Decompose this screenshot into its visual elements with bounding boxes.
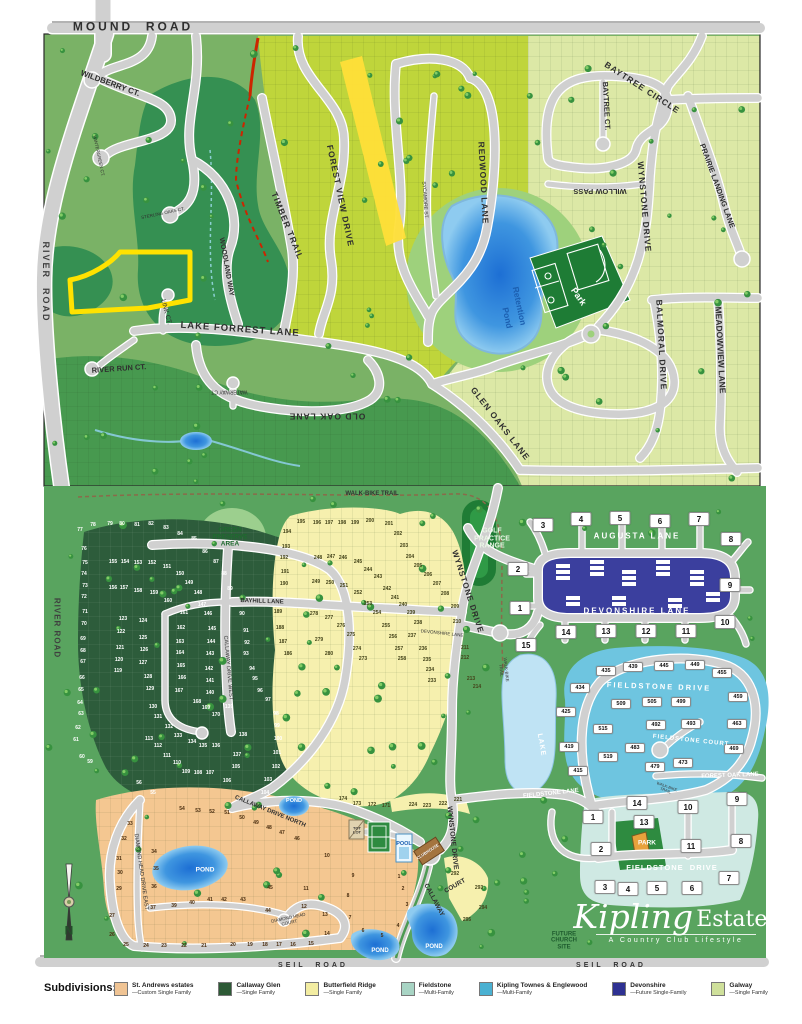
legend-item: Galway—Single Family <box>711 982 768 996</box>
legend-sublabel: —Multi-Family <box>497 990 588 997</box>
legend-label: Callaway Glen—Single Family <box>236 982 280 996</box>
lake <box>502 654 556 793</box>
legend-swatch <box>612 982 626 996</box>
map-graphic <box>0 0 802 1024</box>
legend-item: Callaway Glen—Single Family <box>218 982 280 996</box>
legend-label: Kipling Townes & Englewood—Multi-Family <box>497 982 588 996</box>
legend-sublabel: —Custom Single Family <box>132 990 194 997</box>
logo-kipling: Kipling <box>573 902 693 932</box>
logo-estates: Estates <box>696 908 778 932</box>
small-pond <box>279 796 309 816</box>
legend-label: Fieldstone—Multi-Family <box>419 982 454 996</box>
tennis-courts <box>368 822 390 852</box>
legend-swatch <box>114 982 128 996</box>
legend-sublabel: —Multi-Family <box>419 990 454 997</box>
legend-sublabel: —Future Single-Family <box>630 990 686 997</box>
legend-label: Butterfield Ridge—Single Family <box>323 982 375 996</box>
legend-sublabel: —Single Family <box>323 990 375 997</box>
legend-item: Fieldstone—Multi-Family <box>401 982 454 996</box>
legend-swatch <box>711 982 725 996</box>
subdivision-map: 1234567891011121314154354394454494554344… <box>0 0 802 1024</box>
legend-sublabel: —Single Family <box>236 990 280 997</box>
small-pond-north <box>180 432 212 450</box>
tot-lot <box>349 820 364 839</box>
legend-label: St. Andrews estates—Custom Single Family <box>132 982 194 996</box>
legend: Subdivisions: St. Andrews estates—Custom… <box>44 982 768 996</box>
legend-title: Subdivisions: <box>44 982 114 994</box>
legend-label: Galway—Single Family <box>729 982 768 996</box>
legend-swatch <box>218 982 232 996</box>
legend-item: Kipling Townes & Englewood—Multi-Family <box>479 982 588 996</box>
legend-label: Devonshire—Future Single-Family <box>630 982 686 996</box>
legend-sublabel: —Single Family <box>729 990 768 997</box>
legend-item: Devonshire—Future Single-Family <box>612 982 686 996</box>
logo: Kipling Estates A Country Club Lifestyle <box>596 902 756 944</box>
legend-swatch <box>479 982 493 996</box>
pool <box>396 834 412 862</box>
legend-swatch <box>401 982 415 996</box>
legend-swatch <box>305 982 319 996</box>
legend-item: St. Andrews estates—Custom Single Family <box>114 982 194 996</box>
legend-item: Butterfield Ridge—Single Family <box>305 982 375 996</box>
